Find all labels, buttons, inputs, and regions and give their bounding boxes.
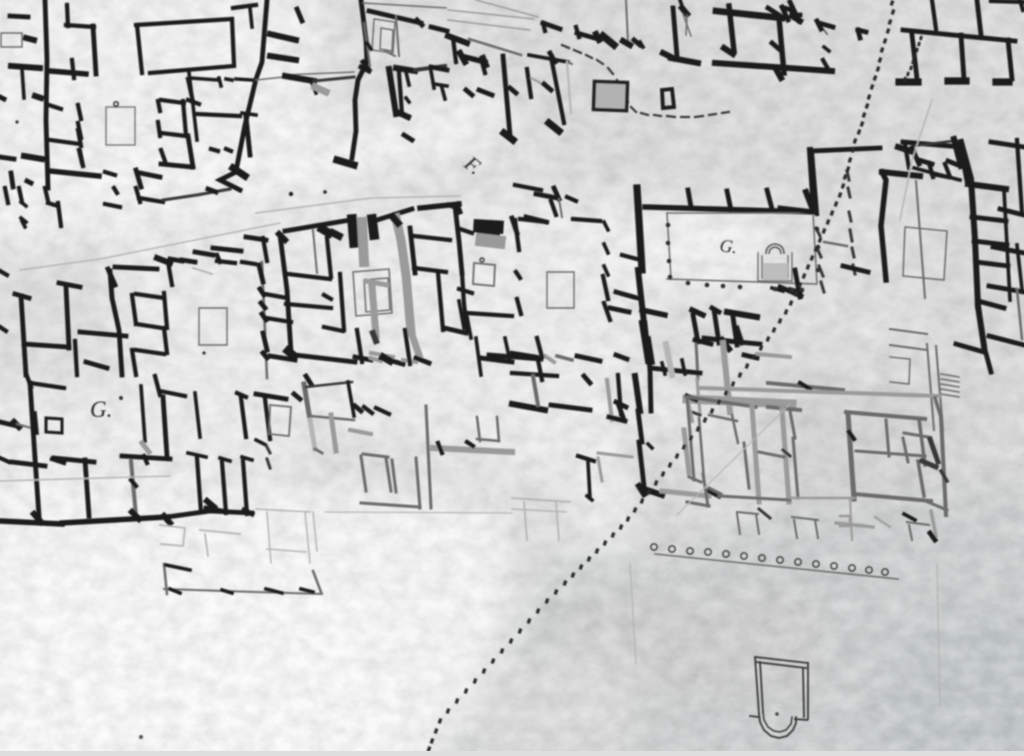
svg-text:G.: G. xyxy=(718,235,738,257)
svg-text:G.: G. xyxy=(90,397,112,422)
